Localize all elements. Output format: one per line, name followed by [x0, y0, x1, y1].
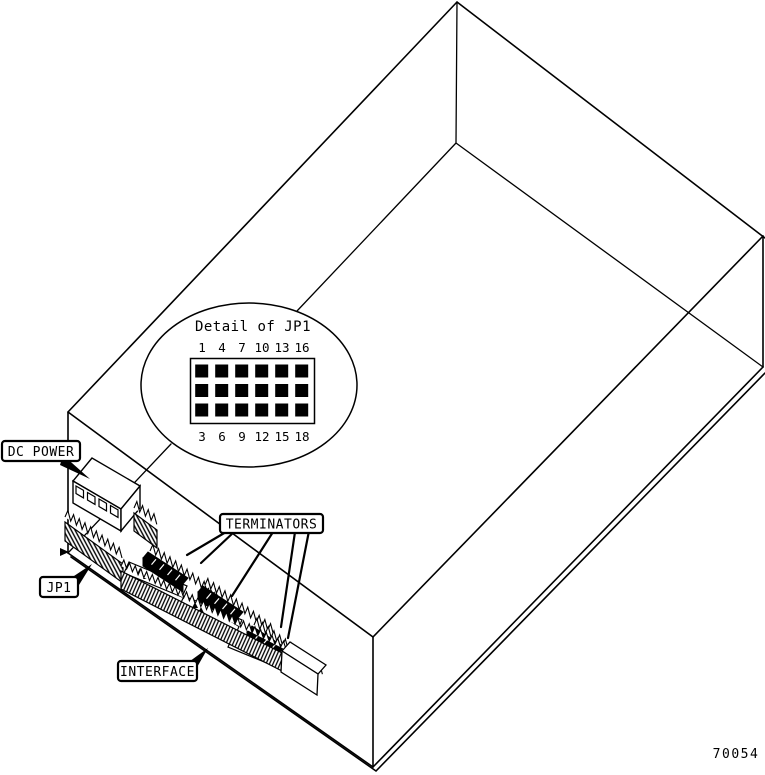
- hidden-bottom-edges: [68, 2, 763, 553]
- pin-label: 9: [238, 429, 246, 444]
- pin-label: 3: [198, 429, 206, 444]
- pin-label: 6: [218, 429, 226, 444]
- pin-label: 10: [254, 340, 269, 355]
- pin-label: 18: [294, 429, 309, 444]
- top-face-edges: [68, 2, 765, 637]
- pin-square: [295, 404, 308, 417]
- resistor-pack: [134, 502, 157, 549]
- pin-label: 15: [274, 429, 289, 444]
- pin-square: [235, 365, 248, 378]
- pin-square: [195, 365, 208, 378]
- drive-isometric-diagram: Detail of JP1 1 4 7 10 13 16: [0, 0, 765, 775]
- callout-interface: INTERFACE: [118, 648, 208, 681]
- pin-label: 7: [238, 340, 246, 355]
- pin-square: [235, 404, 248, 417]
- pointer-line: [288, 531, 309, 638]
- pin-square: [215, 365, 228, 378]
- pin-label: 13: [274, 340, 289, 355]
- pin-square: [255, 404, 268, 417]
- detail-title: Detail of JP1: [195, 319, 311, 335]
- pointer-line: [232, 532, 273, 596]
- pin-label: 16: [294, 340, 309, 355]
- callout-jp1: JP1: [40, 564, 92, 597]
- pin-square: [295, 384, 308, 397]
- callout-label: JP1: [47, 581, 72, 596]
- figure-number: 70054: [713, 747, 760, 762]
- pin-square: [275, 384, 288, 397]
- pin-square: [215, 384, 228, 397]
- pin-label: 12: [254, 429, 269, 444]
- pointer-line: [187, 532, 226, 555]
- pin-square: [275, 365, 288, 378]
- pin-label: 4: [218, 340, 226, 355]
- pin-label: 1: [198, 340, 206, 355]
- pin-square: [275, 404, 288, 417]
- technical-diagram-page: Detail of JP1 1 4 7 10 13 16: [0, 0, 765, 775]
- dc-power-connector: [73, 458, 140, 531]
- vertical-edges: [68, 236, 763, 767]
- pin-square: [195, 404, 208, 417]
- callout-label: INTERFACE: [120, 665, 195, 680]
- pin-square: [255, 384, 268, 397]
- jp1-detail-callout: Detail of JP1 1 4 7 10 13 16: [141, 303, 357, 467]
- pin-square: [255, 365, 268, 378]
- interface-pins-zigzag: [121, 560, 286, 650]
- callout-label: DC POWER: [8, 445, 75, 460]
- pin-square: [295, 365, 308, 378]
- pin-square: [215, 404, 228, 417]
- pin-square: [195, 384, 208, 397]
- pin-square: [235, 384, 248, 397]
- callout-dc-power: DC POWER: [2, 441, 90, 479]
- callout-label: TERMINATORS: [226, 518, 318, 533]
